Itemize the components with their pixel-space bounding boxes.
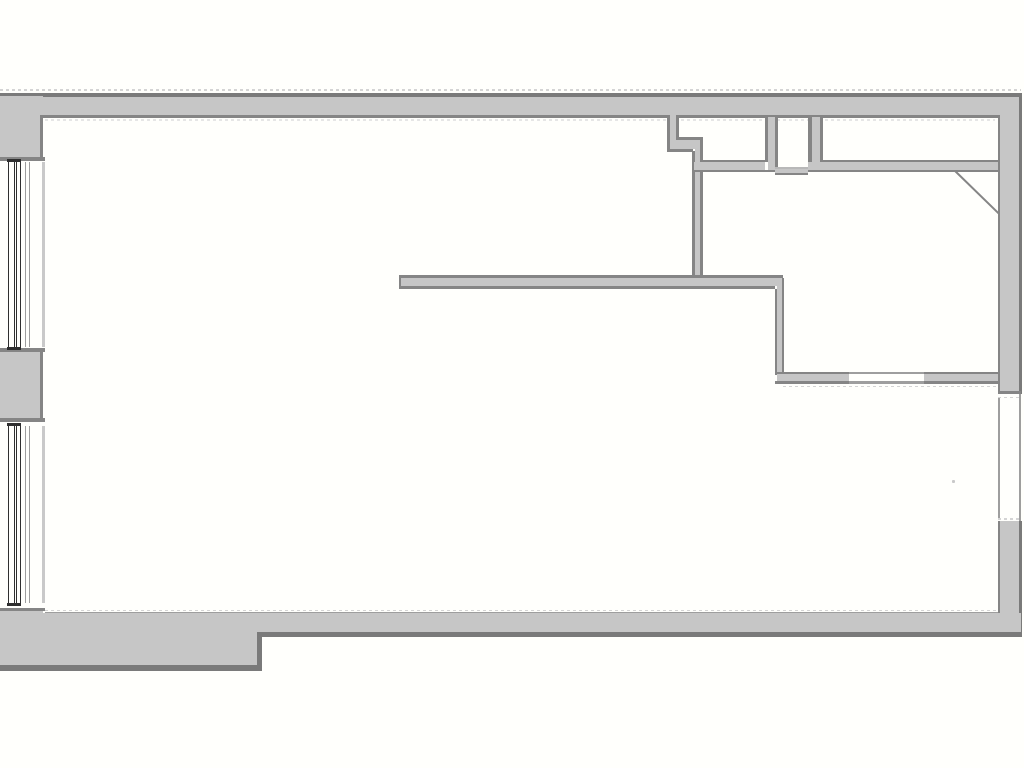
top-wall-inner-edge: [0, 115, 1000, 118]
window2-sill-line-1: [25, 426, 26, 603]
window2-frame-line-inner: [20, 426, 22, 603]
room4-bottom-wall-left-fill: [777, 374, 849, 381]
niche-threshold-bottom-edge: [775, 173, 809, 176]
room4-bottom-wall-right-top-edge: [924, 372, 998, 375]
right-opening-top-dashed: [998, 397, 1021, 399]
room3-bottom-wall-bottom-edge: [808, 170, 998, 173]
bottom-wall-thick-outer-edge: [0, 665, 262, 671]
bottom-wall-inner-dashed: [45, 610, 998, 612]
window2-glazing-line-2: [16, 426, 17, 603]
right-wall-upper-fill: [1000, 115, 1019, 393]
long-wall-top-edge: [399, 275, 784, 278]
window1-reveal-line-2: [43, 162, 44, 347]
niche-right-wall-right-edge: [820, 117, 823, 162]
niche-right-wall-left-edge: [808, 117, 812, 167]
partition-a1-right-edge: [676, 115, 679, 139]
left-wall-pier-fill: [0, 351, 43, 418]
floor-plan: [0, 0, 1024, 768]
room3-bottom-wall-fill: [808, 162, 998, 170]
bottom-wall-thick-fill: [0, 613, 262, 665]
niche-left-wall-left-edge: [765, 117, 768, 162]
right-wall-opening-top-cap: [998, 391, 1021, 394]
top-wall-inner-dashed-line: [45, 119, 995, 121]
top-wall-outer-edge: [0, 93, 1021, 97]
window1-glazing-line-1: [14, 162, 15, 347]
render-artifact-dot: [952, 480, 955, 483]
window1-frame-line-inner: [20, 162, 22, 347]
room1-bottom-wall-top-edge: [701, 160, 765, 163]
room4-left-wall-right-edge: [782, 278, 785, 375]
niche-left-wall-right-edge: [775, 117, 779, 167]
window2-reveal-line-2: [43, 426, 44, 603]
partition-a2-bottom-edge: [667, 149, 693, 152]
room4-bottom-wall-dashed-line: [783, 386, 998, 388]
top-wall-fill: [0, 96, 1021, 115]
window1-glazing-line-2: [16, 162, 17, 347]
window1-frame-line-outer: [8, 162, 10, 347]
window2-sill-bracket: [7, 603, 21, 606]
room1-bottom-wall-fill: [694, 162, 765, 170]
window2-glazing-line-1: [14, 426, 15, 603]
door-swing-diagonal: [954, 170, 999, 214]
right-opening-outer-line: [1019, 394, 1021, 521]
room4-bottom-wall-right-bottom-edge: [924, 381, 998, 384]
bottom-left-sill-edge: [0, 608, 45, 611]
left-wall-top-right-edge: [40, 115, 43, 160]
window1-sill-line-1: [25, 162, 26, 347]
left-wall-pier-right-edge: [40, 351, 43, 418]
partition-a2-fill: [670, 139, 696, 149]
long-wall-left-end-cap: [399, 275, 402, 289]
long-wall-fill: [401, 278, 782, 286]
window2-sill-line-2: [29, 426, 30, 603]
room1-bottom-wall-bottom-edge: [694, 170, 778, 173]
right-wall-upper-inner-edge: [998, 115, 1000, 393]
room4-bottom-wall-left-bottom-edge: [775, 381, 850, 384]
left-wall-top-fill: [0, 96, 43, 157]
window1-sill-bracket: [7, 347, 21, 350]
right-wall-upper-outer-edge: [1019, 93, 1022, 394]
right-wall-lower-inner-edge: [998, 521, 1000, 613]
window2-frame-line-outer: [8, 426, 10, 603]
room4-window-top-line: [849, 372, 924, 374]
window1-sill-line-2: [29, 162, 30, 347]
long-wall-bottom-edge: [399, 286, 776, 289]
bottom-wall-thin-outer-edge: [257, 632, 1021, 637]
room4-window-bottom-line: [849, 381, 924, 383]
room4-bottom-wall-right-fill: [924, 374, 998, 381]
partition-a2-top-edge: [676, 137, 704, 140]
left-wall-pier-bottom-edge: [0, 418, 45, 422]
right-opening-bottom-dashed: [998, 518, 1021, 520]
room4-left-wall-left-edge: [775, 289, 778, 375]
room3-bottom-wall-top-edge: [823, 160, 998, 163]
bottom-wall-step-edge: [257, 632, 262, 671]
room4-bottom-wall-left-top-edge: [775, 372, 850, 375]
top-wall-outer-dashed-line: [0, 89, 1021, 91]
partition-a1-left-edge: [667, 115, 670, 152]
right-opening-inner-line: [998, 398, 1000, 518]
